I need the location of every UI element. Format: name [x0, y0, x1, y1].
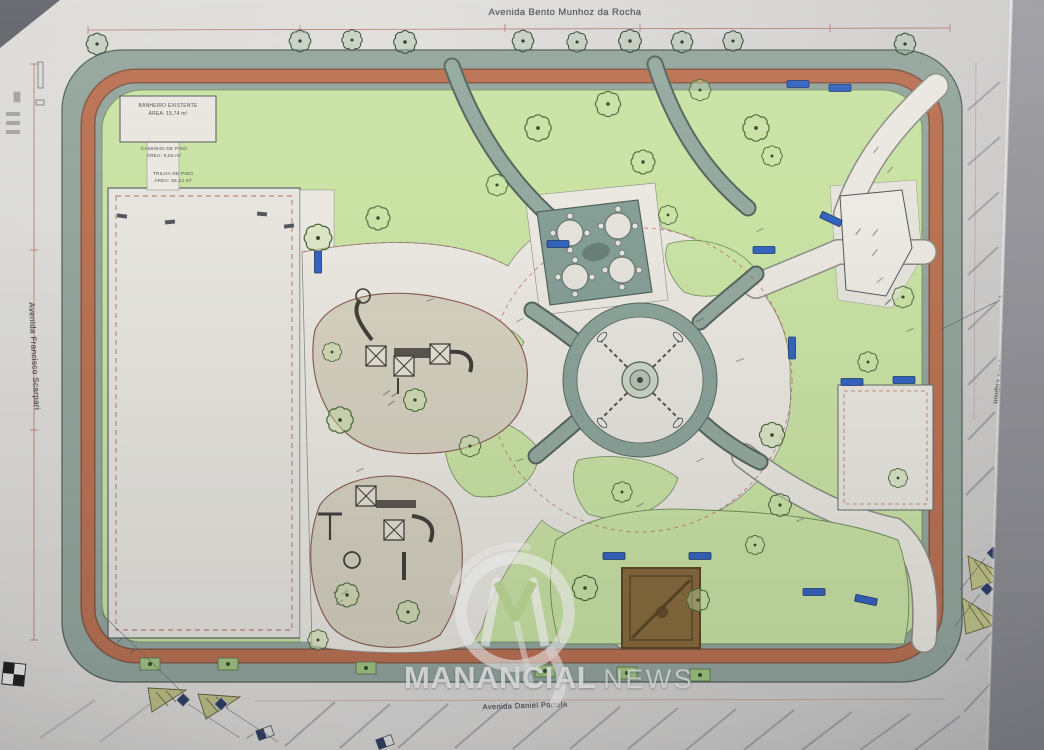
sand-square: [622, 568, 700, 648]
restroom-label-line2: ÁREA: 15,74 m²: [121, 111, 215, 119]
checkered-symbol: [2, 662, 26, 686]
existing-field: [108, 188, 300, 638]
watermark-logo: [423, 515, 613, 715]
walkway-label: CAMINHO DE PISO ÁREA: 9,60 m²: [128, 146, 200, 161]
park-siteplan-photo: Avenida Bento Munhoz da Rocha Avenida Da…: [0, 0, 1044, 750]
reserved-court: [838, 385, 933, 510]
left-street-fixtures: [6, 62, 44, 134]
restroom-label: BANHEIRO EXISTENTE ÁREA: 15,74 m²: [121, 103, 215, 119]
street-label-top: Avenida Bento Munhoz da Rocha: [480, 7, 650, 18]
trail-label-line2: ÁREA: 56,12 m²: [118, 178, 228, 185]
trail-label: TRILHA DE PISO ÁREA: 56,12 m²: [118, 171, 228, 186]
restroom-label-line1: BANHEIRO EXISTENTE: [121, 103, 215, 111]
light-fixtures: [256, 726, 394, 750]
picnic-plaza: [537, 200, 652, 305]
walkway-label-line2: ÁREA: 9,60 m²: [128, 153, 200, 160]
fountain: [622, 362, 658, 398]
trail-label-line1: TRILHA DE PISO: [118, 171, 228, 178]
walkway-label-line1: CAMINHO DE PISO: [128, 146, 200, 153]
